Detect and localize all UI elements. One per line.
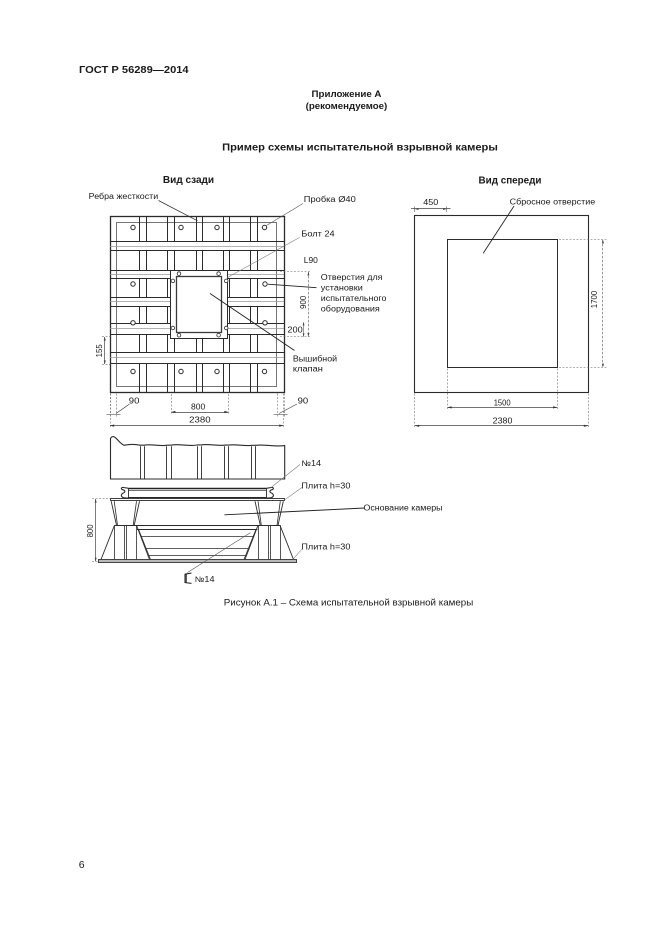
svg-text:Отверстия для: Отверстия для — [321, 273, 383, 282]
svg-text:№14: №14 — [195, 575, 215, 584]
svg-text:1700: 1700 — [590, 290, 599, 308]
svg-text:800: 800 — [191, 402, 206, 411]
svg-text:ГОСТ Р 56289—2014: ГОСТ Р 56289—2014 — [79, 65, 189, 76]
svg-text:Вид сзади: Вид сзади — [163, 175, 214, 186]
svg-text:Сбросное отверстие: Сбросное отверстие — [510, 197, 596, 206]
svg-text:Основание камеры: Основание камеры — [364, 503, 443, 512]
svg-text:800: 800 — [86, 524, 95, 538]
svg-text:Рисунок А.1 – Схема испытатель: Рисунок А.1 – Схема испытательной взрывн… — [224, 597, 474, 607]
svg-text:№14: №14 — [301, 459, 321, 468]
svg-text:2380: 2380 — [493, 416, 513, 425]
svg-text:450: 450 — [423, 198, 439, 207]
svg-text:90: 90 — [298, 397, 309, 406]
svg-text:1500: 1500 — [494, 398, 512, 407]
svg-text:Плита h=30: Плита h=30 — [301, 481, 351, 490]
svg-text:Пробка Ø40: Пробка Ø40 — [304, 195, 357, 204]
svg-text:Вышибной: Вышибной — [293, 354, 337, 363]
svg-text:Вид спереди: Вид спереди — [479, 176, 542, 187]
svg-text:Пример схемы испытательной взр: Пример схемы испытательной взрывной каме… — [222, 143, 498, 154]
svg-text:оборудования: оборудования — [321, 304, 380, 313]
svg-text:клапан: клапан — [293, 364, 323, 373]
svg-text:Приложение А: Приложение А — [312, 89, 382, 99]
svg-text:2380: 2380 — [189, 416, 211, 425]
svg-text:155: 155 — [95, 344, 104, 358]
svg-text:L90: L90 — [304, 255, 318, 265]
svg-text:Болт 24: Болт 24 — [301, 229, 335, 238]
svg-text:установки: установки — [321, 284, 363, 293]
svg-text:испытательного: испытательного — [321, 294, 387, 303]
svg-text:6: 6 — [79, 859, 85, 871]
svg-text:(рекомендуемое): (рекомендуемое) — [306, 101, 388, 111]
svg-text:90: 90 — [129, 397, 140, 406]
svg-text:Плита h=30: Плита h=30 — [301, 543, 351, 552]
svg-text:200: 200 — [287, 325, 303, 334]
svg-text:900: 900 — [299, 295, 308, 309]
svg-text:Ребра жесткости: Ребра жесткости — [89, 192, 159, 201]
